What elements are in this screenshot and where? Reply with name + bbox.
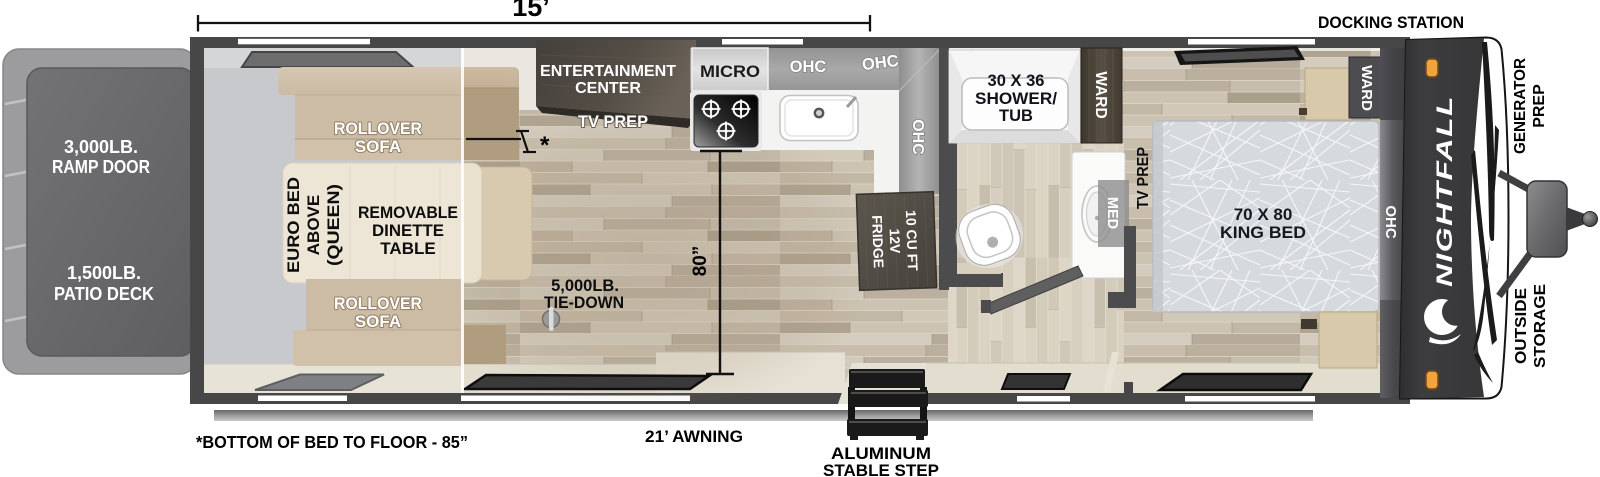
svg-text:TUB: TUB	[999, 107, 1033, 125]
svg-text:TV PREP: TV PREP	[578, 113, 648, 131]
svg-text:ENTERTAINMENT: ENTERTAINMENT	[540, 63, 676, 80]
svg-text:*: *	[540, 132, 550, 159]
svg-text:*BOTTOM OF BED TO FLOOR - 85”: *BOTTOM OF BED TO FLOOR - 85”	[196, 432, 468, 452]
svg-text:CENTER: CENTER	[575, 80, 641, 97]
svg-text:TIE-DOWN: TIE-DOWN	[544, 294, 624, 312]
svg-text:15’: 15’	[512, 0, 550, 22]
svg-text:OHC: OHC	[1382, 205, 1399, 239]
svg-text:1,500LB.: 1,500LB.	[67, 263, 141, 283]
svg-text:PATIO DECK: PATIO DECK	[54, 284, 154, 304]
svg-text:SOFA: SOFA	[355, 312, 401, 331]
svg-text:DINETTE: DINETTE	[372, 221, 444, 240]
svg-text:DOCKING STATION: DOCKING STATION	[1318, 13, 1464, 32]
svg-text:TABLE: TABLE	[380, 239, 435, 258]
svg-text:WARD: WARD	[1092, 71, 1109, 118]
svg-text:5,000LB.: 5,000LB.	[551, 277, 619, 295]
svg-text:80”: 80”	[690, 246, 711, 277]
svg-text:STABLE STEP: STABLE STEP	[823, 461, 939, 477]
svg-text:NIGHTFALL: NIGHTFALL	[1432, 95, 1457, 287]
svg-text:ROLLOVER: ROLLOVER	[334, 294, 422, 313]
svg-text:RAMP DOOR: RAMP DOOR	[52, 157, 150, 177]
svg-text:MICRO: MICRO	[700, 63, 760, 81]
svg-text:SHOWER/: SHOWER/	[975, 90, 1057, 108]
svg-text:3,000LB.: 3,000LB.	[64, 137, 138, 157]
svg-text:SOFA: SOFA	[355, 137, 401, 156]
svg-text:OHC: OHC	[909, 119, 926, 155]
svg-text:REMOVABLE: REMOVABLE	[358, 203, 458, 222]
svg-text:WARD: WARD	[1358, 65, 1375, 111]
svg-text:KING BED: KING BED	[1220, 223, 1306, 242]
svg-text:ROLLOVER: ROLLOVER	[334, 119, 422, 138]
svg-text:MED: MED	[1104, 197, 1120, 229]
svg-text:30 X 36: 30 X 36	[988, 72, 1045, 90]
svg-text:21’ AWNING: 21’ AWNING	[645, 427, 743, 446]
svg-text:OHC: OHC	[790, 58, 827, 76]
svg-text:70 X 80: 70 X 80	[1234, 205, 1293, 224]
svg-text:TV PREP: TV PREP	[1135, 147, 1152, 209]
